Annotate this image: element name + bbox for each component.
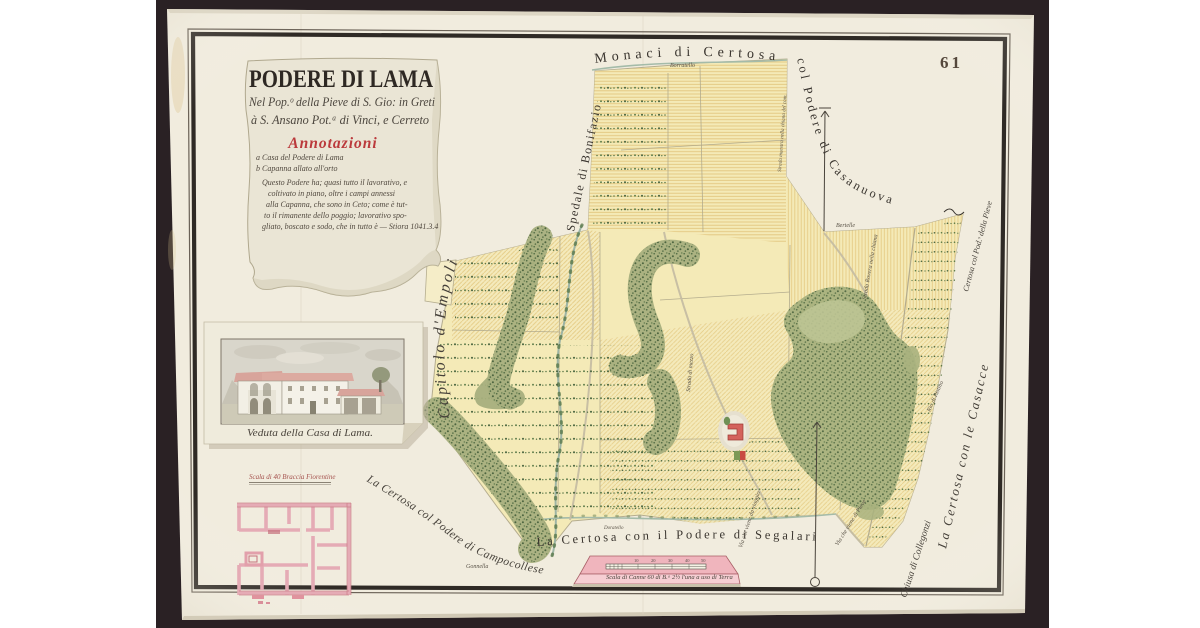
svg-text:gliato, boscato e sodo, che in: gliato, boscato e sodo, che in tutto è —… <box>262 222 438 231</box>
svg-text:Scala di 40 Braccia Fiorentine: Scala di 40 Braccia Fiorentine <box>249 473 335 481</box>
svg-text:Annotazioni: Annotazioni <box>287 135 377 152</box>
svg-text:40: 40 <box>685 558 690 563</box>
svg-text:Doratello: Doratello <box>603 526 624 531</box>
svg-text:Nel Pop.ᵒ della Pieve di S. Gi: Nel Pop.ᵒ della Pieve di S. Gio: in Gret… <box>248 94 435 109</box>
svg-text:20: 20 <box>651 558 656 563</box>
svg-text:Questo Podere ha; quasi tutto: Questo Podere ha; quasi tutto il lavorat… <box>262 178 407 187</box>
svg-text:coltivato in piano, oltre i ca: coltivato in piano, oltre i campi anness… <box>268 189 395 198</box>
svg-text:a Casa del Podere di Lama: a Casa del Podere di Lama <box>256 153 343 162</box>
svg-text:61: 61 <box>940 53 963 72</box>
svg-text:b Capanna allato all'orto: b Capanna allato all'orto <box>256 164 338 173</box>
svg-text:Gonnella: Gonnella <box>466 564 488 570</box>
svg-text:alla Capanna, che sono in Ceto: alla Capanna, che sono in Ceto; come è t… <box>266 200 408 209</box>
svg-text:Bertelle: Bertelle <box>836 223 855 229</box>
svg-text:Veduta della Casa di Lama.: Veduta della Casa di Lama. <box>247 428 373 439</box>
svg-text:Borratello: Borratello <box>670 63 695 69</box>
svg-text:10: 10 <box>634 558 639 563</box>
svg-text:PODERE DI LAMA: PODERE DI LAMA <box>249 64 433 93</box>
svg-text:30: 30 <box>668 558 673 563</box>
svg-text:50: 50 <box>701 558 706 563</box>
svg-text:Scala di Canne 60 di B.ᵃ 2½ l': Scala di Canne 60 di B.ᵃ 2½ l'una a uso … <box>606 574 733 581</box>
svg-text:à S. Ansano Pot.ᵃ di Vinci, e: à S. Ansano Pot.ᵃ di Vinci, e Cerreto <box>251 112 429 127</box>
svg-text:to il rimanente dello poggio;: to il rimanente dello poggio; lavorativo… <box>264 211 407 220</box>
